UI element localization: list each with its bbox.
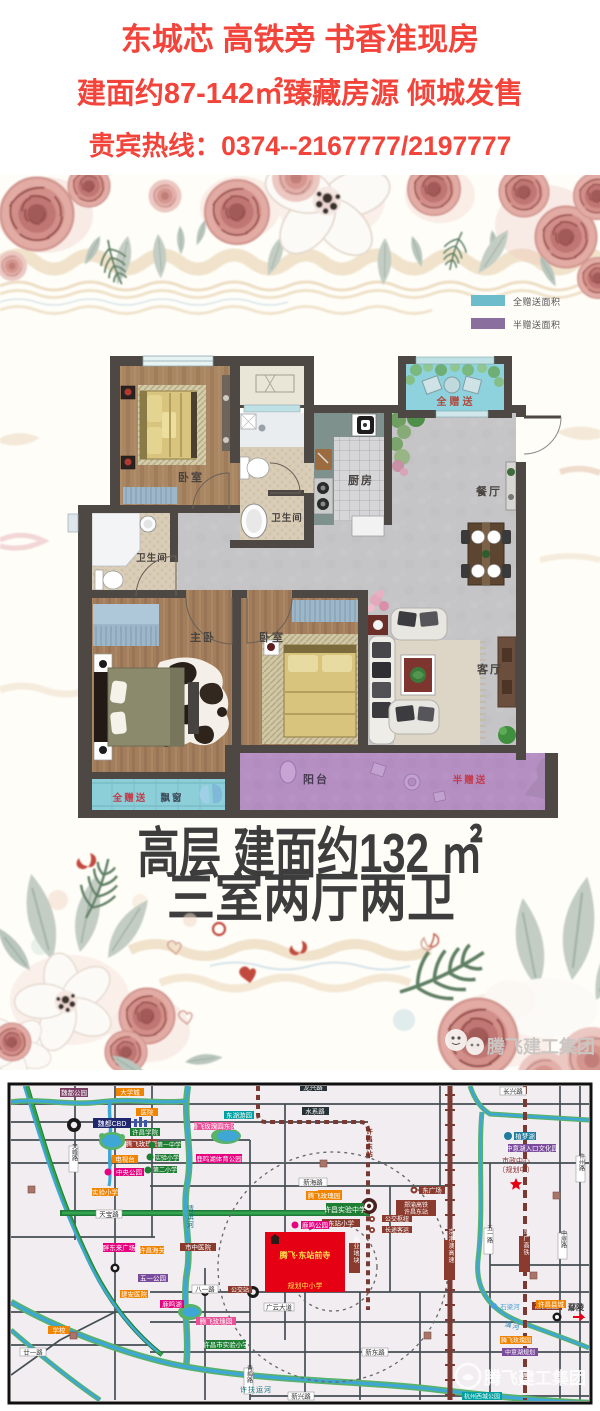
svg-text:魏都CBD: 魏都CBD (98, 1119, 127, 1128)
svg-text:鹿鸣公园: 鹿鸣公园 (302, 1221, 328, 1230)
svg-text:东站小学: 东站小学 (328, 1219, 355, 1228)
svg-text:八一路: 八一路 (195, 1285, 215, 1294)
svg-text:半赠送: 半赠送 (453, 774, 488, 786)
svg-text:鹿鸣湖体育公园: 鹿鸣湖体育公园 (196, 1154, 242, 1163)
svg-text:三室两厅两卫: 三室两厅两卫 (167, 868, 455, 928)
svg-text:腾飞·东站前寺: 腾飞·东站前寺 (279, 1250, 331, 1260)
svg-text:半赠送面积: 半赠送面积 (513, 319, 561, 330)
svg-text:许昌市实验小学: 许昌市实验小学 (203, 1340, 249, 1349)
svg-text:建安医院: 建安医院 (121, 1290, 148, 1299)
svg-text:许昌海关: 许昌海关 (139, 1246, 166, 1255)
svg-text:实验小学: 实验小学 (92, 1188, 119, 1197)
svg-text:许州路: 许州路 (578, 1152, 585, 1172)
svg-text:五一路: 五一路 (486, 1225, 493, 1244)
svg-text:京广高铁: 京广高铁 (522, 1227, 529, 1256)
svg-text:全赠送: 全赠送 (112, 792, 148, 804)
svg-text:东湖游园: 东湖游园 (226, 1111, 252, 1120)
svg-text:腾飞玫瑰园东区: 腾飞玫瑰园东区 (191, 1122, 237, 1131)
svg-text:郑渝高铁: 郑渝高铁 (404, 1201, 428, 1209)
svg-text:石梁河: 石梁河 (500, 1302, 520, 1311)
svg-text:学校: 学校 (53, 1326, 67, 1335)
svg-text:许昌县城: 许昌县城 (538, 1300, 565, 1309)
svg-text:新东路: 新东路 (365, 1348, 385, 1357)
svg-text:卫生间: 卫生间 (271, 512, 303, 524)
svg-text:商业地块: 商业地块 (352, 1235, 359, 1264)
svg-text:第一中学: 第一中学 (157, 1141, 181, 1149)
svg-text:飘窗: 飘窗 (159, 792, 183, 804)
svg-text:中意湖入口文化园: 中意湖入口文化园 (506, 1144, 558, 1153)
svg-text:卧室: 卧室 (259, 630, 285, 644)
svg-text:厨房: 厨房 (348, 473, 374, 487)
svg-text:清潩河: 清潩河 (187, 1204, 195, 1229)
svg-text:许昌实验中学: 许昌实验中学 (324, 1205, 366, 1214)
svg-text:客厅: 客厅 (476, 662, 503, 676)
svg-text:京港澳高速: 京港澳高速 (447, 1228, 454, 1264)
svg-text:餐厅: 餐厅 (475, 484, 502, 498)
svg-text:廿一路: 廿一路 (23, 1348, 43, 1357)
svg-text:公交枢纽: 公交枢纽 (385, 1215, 409, 1223)
svg-text:广云大道: 广云大道 (266, 1303, 293, 1312)
svg-text:水系路: 水系路 (305, 1107, 325, 1116)
svg-text:长途客运: 长途客运 (385, 1226, 409, 1234)
svg-text:电视台: 电视台 (115, 1155, 135, 1164)
svg-text:腾飞玫瑰园: 腾飞玫瑰园 (308, 1191, 341, 1200)
svg-text:鹿鸣湖: 鹿鸣湖 (162, 1300, 182, 1309)
svg-text:腾飞建工集团: 腾飞建工集团 (484, 1368, 586, 1388)
svg-text:文峰路: 文峰路 (71, 1142, 78, 1162)
svg-text:市中医院: 市中医院 (185, 1243, 212, 1252)
svg-text:中意湖规划: 中意湖规划 (505, 1349, 535, 1357)
svg-text:腾飞玫瑰园: 腾飞玫瑰园 (501, 1337, 531, 1345)
svg-text:腾飞建工集团: 腾飞建工集团 (487, 1036, 595, 1057)
svg-text:许昌学院: 许昌学院 (132, 1128, 159, 1137)
svg-text:卧室: 卧室 (178, 470, 204, 484)
svg-text:中央公园: 中央公园 (116, 1168, 142, 1177)
svg-text:第二小学: 第二小学 (153, 1166, 177, 1174)
svg-text:全赠送: 全赠送 (436, 395, 476, 408)
svg-text:中原路: 中原路 (560, 1229, 567, 1249)
svg-text:魏都公园: 魏都公园 (61, 1088, 87, 1097)
svg-text:医院: 医院 (141, 1108, 155, 1117)
svg-text:阳台: 阳台 (303, 772, 329, 786)
svg-text:腾飞玫瑰园: 腾飞玫瑰园 (200, 1317, 233, 1326)
svg-text:新兴路: 新兴路 (291, 1392, 311, 1401)
svg-text:主卧: 主卧 (190, 630, 216, 644)
svg-text:植梦湖: 植梦湖 (515, 1132, 535, 1141)
svg-text:长兴路: 长兴路 (503, 1087, 523, 1096)
svg-text:市政中心: 市政中心 (502, 1156, 530, 1165)
svg-text:新海路: 新海路 (303, 1178, 323, 1187)
svg-text:〔规划中〕: 〔规划中〕 (499, 1165, 534, 1174)
svg-text:东广场: 东广场 (422, 1186, 442, 1195)
svg-text:全赠送面积: 全赠送面积 (513, 296, 561, 307)
svg-text:鄢陵: 鄢陵 (567, 1302, 585, 1312)
svg-text:公交站: 公交站 (231, 1286, 249, 1294)
svg-text:五一公园: 五一公园 (140, 1275, 166, 1283)
svg-text:天宝路: 天宝路 (99, 1210, 119, 1219)
svg-text:大学城: 大学城 (120, 1088, 140, 1097)
svg-text:实验小学: 实验小学 (155, 1154, 179, 1162)
svg-text:许昌东站: 许昌东站 (404, 1208, 428, 1216)
svg-text:规划中小学: 规划中小学 (288, 1281, 323, 1290)
svg-text:青梅路: 青梅路 (246, 1364, 253, 1384)
svg-text:许扶运河: 许扶运河 (240, 1385, 272, 1394)
svg-text:胖东来广场: 胖东来广场 (103, 1243, 136, 1252)
svg-text:杭州西城公园: 杭州西城公园 (464, 1393, 500, 1401)
